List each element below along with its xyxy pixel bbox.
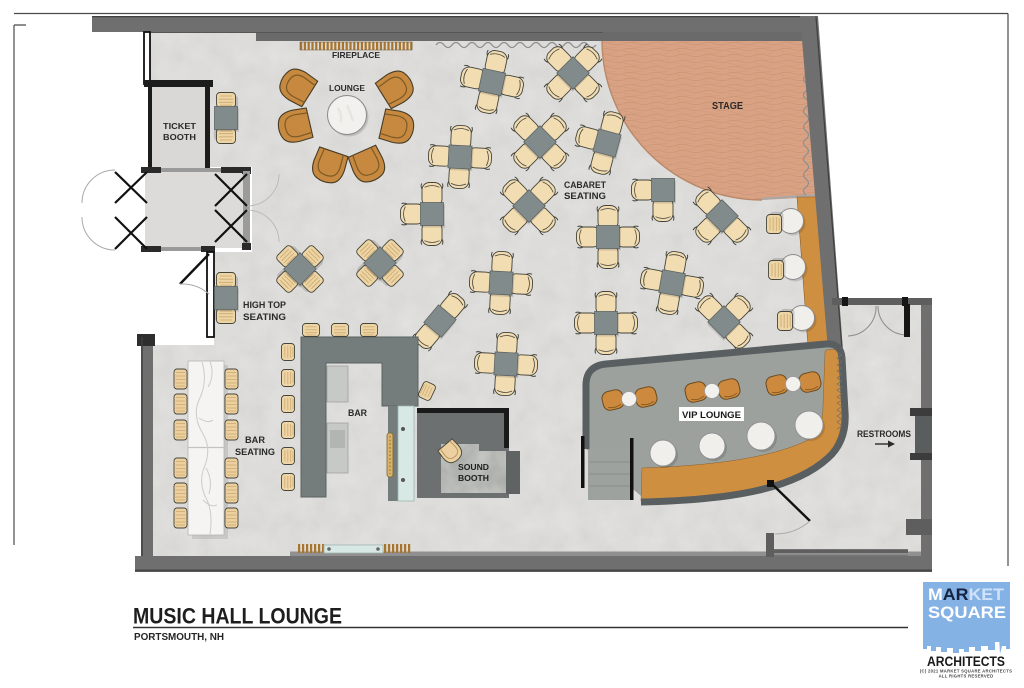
svg-text:RESTROOMS: RESTROOMS [857, 429, 911, 440]
svg-text:TICKET: TICKET [163, 121, 197, 131]
svg-text:FIREPLACE: FIREPLACE [332, 50, 380, 60]
svg-text:STAGE: STAGE [712, 101, 743, 112]
svg-text:CABARET: CABARET [564, 180, 606, 191]
svg-text:MUSIC HALL LOUNGE: MUSIC HALL LOUNGE [133, 604, 342, 629]
svg-text:BOOTH: BOOTH [163, 132, 196, 142]
svg-text:ARCHITECTS: ARCHITECTS [927, 654, 1005, 669]
svg-text:SQUARE: SQUARE [928, 604, 1006, 622]
svg-text:ALL RIGHTS RESERVED: ALL RIGHTS RESERVED [939, 674, 994, 679]
svg-text:SEATING: SEATING [564, 191, 606, 202]
svg-text:BAR: BAR [348, 408, 367, 419]
svg-text:BAR: BAR [245, 435, 265, 446]
svg-text:SOUND: SOUND [458, 462, 489, 472]
svg-text:PORTSMOUTH, NH: PORTSMOUTH, NH [134, 631, 224, 643]
svg-text:LOUNGE: LOUNGE [329, 83, 365, 93]
svg-text:SEATING: SEATING [243, 312, 286, 323]
svg-text:VIP LOUNGE: VIP LOUNGE [682, 410, 741, 421]
svg-text:MARKET: MARKET [928, 586, 1004, 604]
svg-text:BOOTH: BOOTH [458, 473, 489, 483]
svg-text:SEATING: SEATING [235, 447, 275, 458]
svg-text:HIGH TOP: HIGH TOP [243, 300, 287, 311]
